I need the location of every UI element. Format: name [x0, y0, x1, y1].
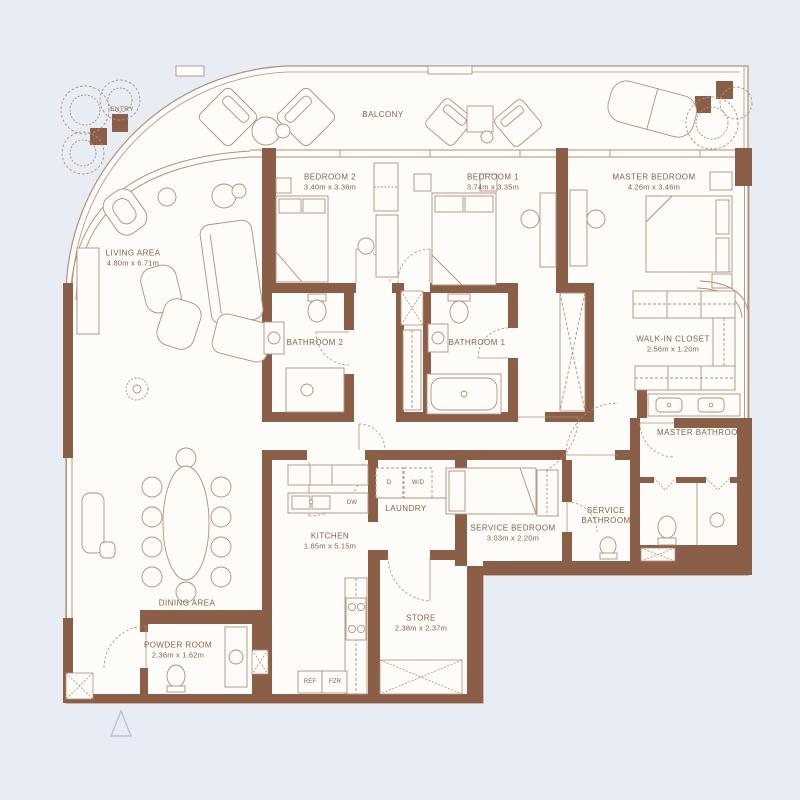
- dresser-stool: [587, 210, 605, 228]
- toilet: [658, 516, 676, 545]
- plant: [126, 378, 148, 400]
- pouf-1: [158, 188, 176, 206]
- service-toilet: [600, 537, 617, 559]
- toilet: [167, 665, 185, 692]
- north-arrow-icon: [111, 711, 131, 736]
- dresser: [570, 190, 587, 266]
- floorplan-canvas: BALCONY ENTRY LIVING AREA4.80m x 6.71m B…: [0, 0, 800, 800]
- service-wardrobe: [537, 470, 558, 516]
- bench: [712, 274, 732, 288]
- nightstand-right: [480, 174, 497, 191]
- wardrobe: [374, 163, 398, 211]
- sink: [428, 324, 448, 352]
- desk: [540, 193, 556, 267]
- dining-table: [163, 466, 209, 580]
- dryer-box: [376, 468, 403, 498]
- shower: [286, 368, 344, 412]
- vanity: [225, 627, 247, 687]
- shaft-powder: [252, 650, 268, 674]
- pouf-3: [232, 184, 246, 198]
- service-bed: [446, 468, 536, 514]
- toilet: [308, 294, 326, 322]
- nightstand: [276, 178, 291, 193]
- desk-chair: [521, 210, 539, 228]
- stove: [346, 598, 366, 640]
- shaft-hall: [401, 291, 423, 325]
- desk-stool: [358, 238, 374, 254]
- shower-drain: [710, 513, 724, 527]
- shaft-store: [380, 660, 462, 694]
- nightstand-top: [710, 172, 732, 190]
- planter-2: [428, 66, 472, 74]
- nightstand-left: [414, 174, 431, 191]
- shaft-corner: [66, 673, 93, 699]
- washer-box: [404, 468, 432, 498]
- hall-closet: [560, 293, 585, 411]
- toilet: [448, 294, 470, 323]
- sink: [264, 322, 284, 354]
- bathtub: [427, 374, 501, 414]
- tall-cabinet: [403, 330, 421, 410]
- planter-1: [176, 66, 204, 76]
- desk: [376, 215, 398, 277]
- fzr-box: [322, 671, 347, 693]
- floorplan-drawing: [0, 0, 800, 800]
- shaft-master-bath: [641, 548, 675, 561]
- balcony-table-2: [467, 106, 493, 132]
- ref-box: [298, 671, 322, 693]
- tv-console: [77, 248, 99, 334]
- upper-counter: [288, 465, 368, 485]
